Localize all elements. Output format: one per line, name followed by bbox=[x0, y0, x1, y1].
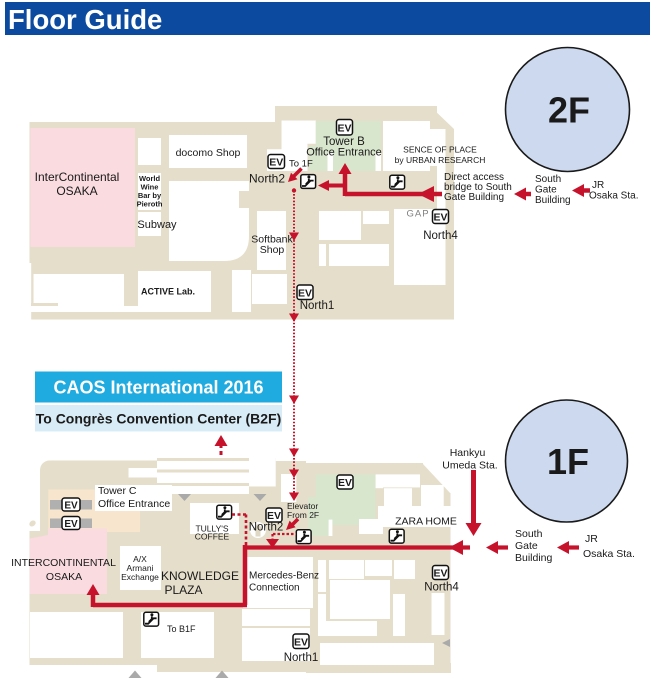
svg-text:Hankyu: Hankyu bbox=[450, 447, 486, 459]
svg-text:SENCE OF PLACE: SENCE OF PLACE bbox=[403, 145, 477, 155]
svg-text:Building: Building bbox=[535, 195, 571, 206]
svg-text:Subway: Subway bbox=[137, 219, 177, 231]
svg-text:Gate Building: Gate Building bbox=[444, 192, 504, 203]
svg-text:EV: EV bbox=[337, 123, 351, 135]
svg-text:OSAKA: OSAKA bbox=[56, 184, 97, 198]
svg-text:EV: EV bbox=[267, 510, 281, 522]
svg-text:Floor Guide: Floor Guide bbox=[8, 4, 162, 35]
svg-text:To B1F: To B1F bbox=[167, 624, 196, 634]
svg-text:EV: EV bbox=[433, 568, 447, 580]
svg-text:EV: EV bbox=[294, 637, 308, 649]
svg-text:Pieroth: Pieroth bbox=[137, 200, 163, 209]
svg-text:EV: EV bbox=[64, 519, 78, 530]
svg-text:Umeda Sta.: Umeda Sta. bbox=[442, 460, 497, 472]
svg-text:To 1F: To 1F bbox=[289, 159, 313, 170]
svg-text:Office Entrance: Office Entrance bbox=[306, 147, 382, 159]
svg-text:North1: North1 bbox=[300, 300, 335, 312]
svg-text:PLAZA: PLAZA bbox=[165, 583, 203, 597]
svg-text:1F: 1F bbox=[547, 441, 589, 482]
svg-text:COFFEE: COFFEE bbox=[195, 532, 230, 542]
svg-text:North1: North1 bbox=[284, 652, 319, 664]
svg-text:JR: JR bbox=[585, 533, 598, 545]
svg-text:Osaka Sta.: Osaka Sta. bbox=[589, 191, 638, 202]
svg-text:South: South bbox=[535, 174, 561, 185]
svg-text:Building: Building bbox=[515, 552, 553, 564]
svg-text:North2: North2 bbox=[249, 522, 284, 534]
svg-text:Gate: Gate bbox=[515, 540, 538, 552]
svg-text:KNOWLEDGE: KNOWLEDGE bbox=[161, 569, 239, 583]
svg-text:by URBAN RESEARCH: by URBAN RESEARCH bbox=[395, 155, 486, 165]
svg-text:Office Entrance: Office Entrance bbox=[98, 498, 170, 510]
svg-text:Gate: Gate bbox=[535, 185, 557, 196]
svg-text:North4: North4 bbox=[424, 582, 459, 594]
svg-text:GAP: GAP bbox=[406, 209, 429, 220]
svg-text:EV: EV bbox=[64, 501, 78, 512]
svg-text:Shop: Shop bbox=[260, 244, 285, 256]
svg-text:EV: EV bbox=[433, 212, 447, 224]
svg-text:EV: EV bbox=[338, 477, 352, 489]
svg-text:OSAKA: OSAKA bbox=[46, 571, 82, 583]
svg-text:Osaka Sta.: Osaka Sta. bbox=[583, 548, 635, 560]
svg-text:Mercedes-Benz: Mercedes-Benz bbox=[249, 571, 319, 582]
svg-text:EV: EV bbox=[298, 288, 312, 300]
svg-text:South: South bbox=[515, 528, 543, 540]
svg-text:Exchange: Exchange bbox=[121, 572, 159, 582]
svg-text:North4: North4 bbox=[423, 230, 458, 242]
svg-text:Connection: Connection bbox=[249, 583, 300, 594]
svg-text:2F: 2F bbox=[548, 90, 590, 131]
svg-text:Tower C: Tower C bbox=[98, 485, 137, 497]
svg-text:InterContinental: InterContinental bbox=[35, 170, 120, 184]
svg-text:From 2F: From 2F bbox=[287, 510, 319, 520]
svg-text:ZARA HOME: ZARA HOME bbox=[395, 516, 457, 528]
svg-text:ACTIVE Lab.: ACTIVE Lab. bbox=[141, 287, 195, 297]
svg-text:CAOS International 2016: CAOS International 2016 bbox=[53, 378, 263, 398]
svg-text:To Congrès Convention Center (: To Congrès Convention Center (B2F) bbox=[36, 411, 282, 427]
svg-text:JR: JR bbox=[592, 180, 604, 191]
svg-text:North2: North2 bbox=[249, 172, 285, 186]
svg-text:EV: EV bbox=[269, 157, 283, 169]
svg-text:docomo Shop: docomo Shop bbox=[176, 147, 241, 159]
svg-text:INTERCONTINENTAL: INTERCONTINENTAL bbox=[11, 557, 116, 569]
